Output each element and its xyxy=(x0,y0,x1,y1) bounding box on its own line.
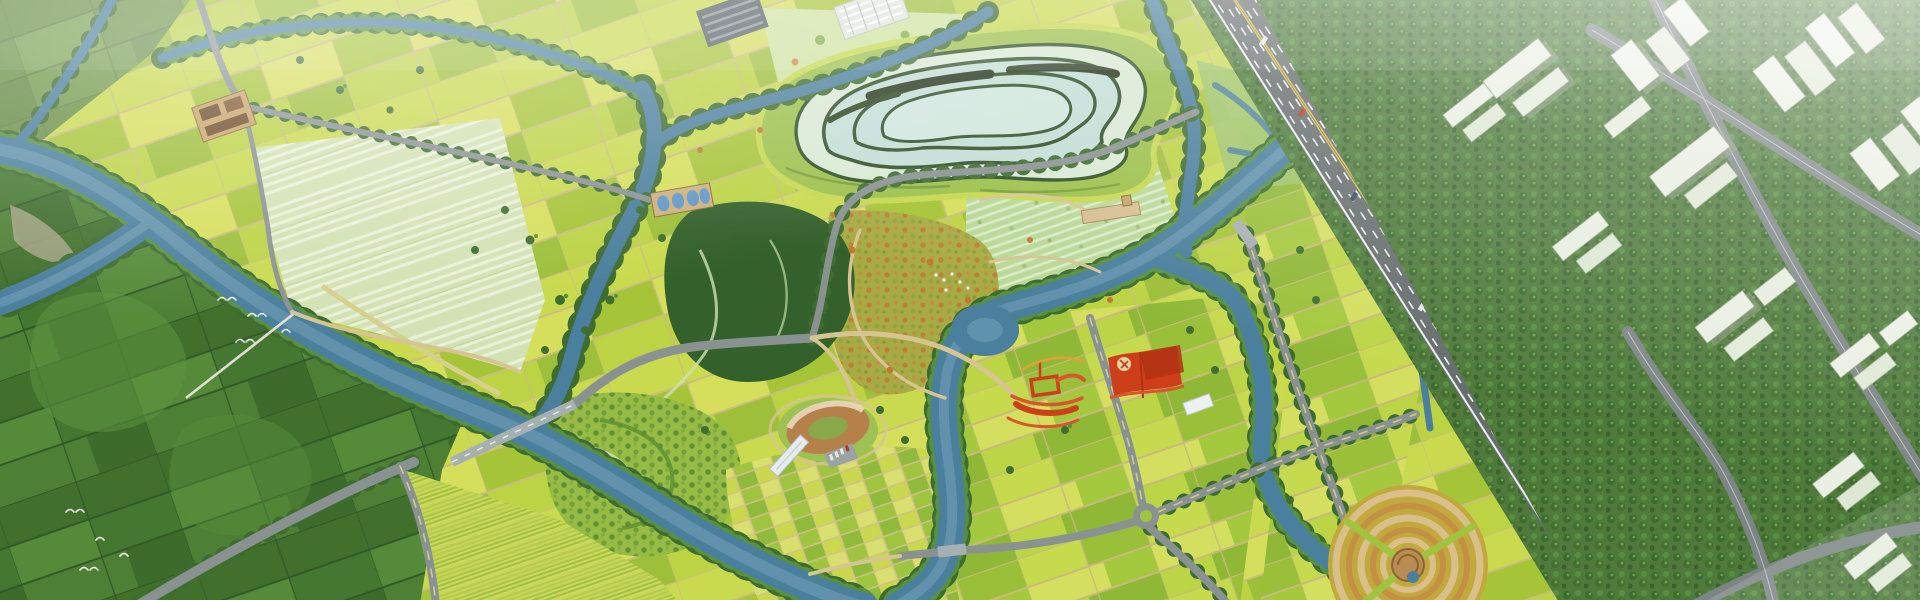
atmosphere-haze xyxy=(0,0,1920,600)
masterplan-scene xyxy=(0,0,1920,600)
masterplan-rendering xyxy=(0,0,1920,600)
